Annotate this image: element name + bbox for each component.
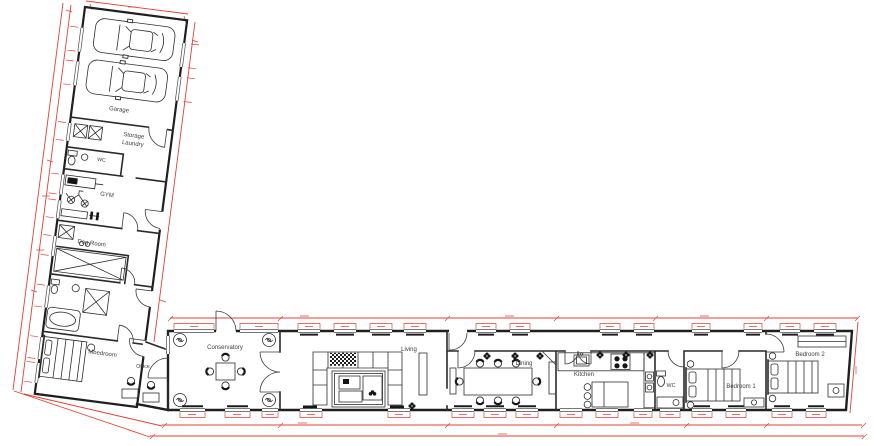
table-icon (216, 363, 235, 380)
room-label-office: Office (136, 364, 150, 370)
nightstand-icon (769, 353, 776, 360)
room-wc-left: WC (67, 150, 107, 169)
left-wing-doors (106, 124, 175, 357)
sofa-icon (313, 352, 402, 405)
room-wc-main: WC (657, 371, 684, 408)
room-label-wc-left: WC (97, 157, 107, 164)
oven-icon (644, 353, 655, 408)
radiator-icon (303, 406, 317, 409)
stool-icon (584, 401, 591, 408)
chair-icon (127, 377, 134, 384)
room-label-gym: GYM (100, 192, 114, 200)
nightstand-icon (769, 395, 776, 402)
toilet-icon (68, 150, 78, 156)
toilet-icon (51, 285, 58, 294)
room-label-dining: Dining (515, 361, 532, 367)
toilet-icon (51, 279, 60, 285)
chair-icon (533, 378, 540, 385)
chair-icon (476, 360, 483, 367)
room-label-living: Living (401, 347, 417, 353)
radiator-icon (390, 406, 404, 409)
chair-icon (222, 382, 229, 389)
chair-icon (456, 378, 463, 385)
bed-icon (39, 336, 87, 383)
vent-icon (512, 353, 519, 360)
main-wing: Conservatory Living (148, 311, 852, 412)
room-bathroom (45, 279, 110, 335)
room-label-bedroom-1: Bedroom 1 (726, 384, 756, 390)
room-conservatory: Conservatory (174, 334, 276, 407)
gym-bench-icon (61, 208, 100, 221)
washing-machine-icon (88, 126, 103, 141)
room-living: Living (303, 347, 427, 410)
plant-icon (263, 334, 276, 347)
room-dog-room: Dog Room (57, 225, 107, 249)
room-garage: Garage (83, 15, 176, 119)
room-gym: GYM (61, 175, 116, 222)
toilet-icon (657, 371, 666, 387)
wardrobe-icon (798, 336, 846, 347)
toilet-icon (68, 156, 76, 166)
room-master-bedroom: Mbedroom (39, 336, 118, 387)
desk-icon (122, 389, 138, 398)
chair-icon (222, 354, 229, 361)
nightstand-icon (687, 361, 694, 368)
vanity-icon (657, 397, 683, 408)
chair-icon (476, 397, 483, 404)
vent-icon (537, 353, 544, 360)
chair-icon (147, 381, 154, 388)
plant-icon (174, 334, 187, 347)
plant-icon (263, 394, 276, 407)
room-label-wc-main: WC (667, 383, 676, 389)
chair-icon (512, 397, 519, 404)
coffee-table-icon (339, 376, 382, 402)
chair-icon (494, 397, 501, 404)
shower-icon (83, 288, 110, 315)
dog-crate-icon (58, 225, 75, 240)
room-storage-laundry: Storage Laundry (73, 124, 146, 149)
stool-icon (584, 384, 591, 391)
treadmill-icon (65, 175, 104, 190)
room-label-conservatory: Conservatory (207, 345, 243, 351)
car-icon (92, 15, 176, 64)
conservatory-side-window (166, 336, 170, 354)
sideboard-icon (549, 362, 556, 394)
desk-icon (143, 393, 159, 402)
basin-icon (81, 154, 88, 161)
island-icon (592, 382, 628, 407)
main-wing-partitions (168, 331, 766, 410)
room-dining: Dining (450, 351, 556, 404)
bench-icon (744, 398, 764, 407)
exercise-bike-icon (64, 189, 89, 208)
nightstand-icon (687, 402, 694, 409)
side-unit-icon (828, 384, 844, 397)
floor-plan-drawing: Garage Storage Laundry WC (0, 0, 874, 446)
room-label-kitchen: Kitchen (574, 372, 594, 378)
room-label-dog-room: Dog Room (77, 239, 106, 249)
left-wing: Garage Storage Laundry WC (23, 5, 202, 408)
room-bedroom-2: Bedroom 2 (768, 336, 846, 402)
basin-icon (72, 284, 80, 292)
room-label-master-bedroom: Mbedroom (88, 349, 117, 359)
chair-icon (494, 360, 501, 367)
left-wing-partitions (43, 117, 173, 344)
room-label-laundry: Laundry (122, 140, 144, 149)
left-wing-windows (24, 26, 199, 398)
plant-icon (174, 394, 187, 407)
room-label-garage: Garage (109, 106, 130, 115)
main-wing-windows-bottom (180, 406, 826, 412)
chair-icon (237, 368, 244, 375)
vent-icon (484, 353, 491, 360)
stool-icon (584, 393, 591, 400)
room-kitchen: Kitchen (558, 352, 655, 408)
room-label-bedroom-2: Bedroom 2 (795, 352, 825, 358)
office-outer-wall (137, 404, 168, 410)
dining-table-icon (464, 368, 532, 395)
bath-icon (49, 311, 77, 328)
floor-plan-sheet: Garage Storage Laundry WC (0, 0, 874, 446)
cabinet-icon (419, 353, 427, 395)
chair-icon (206, 368, 213, 375)
car-icon (85, 57, 169, 106)
washing-machine-icon (73, 124, 88, 139)
bed-icon (768, 360, 818, 394)
